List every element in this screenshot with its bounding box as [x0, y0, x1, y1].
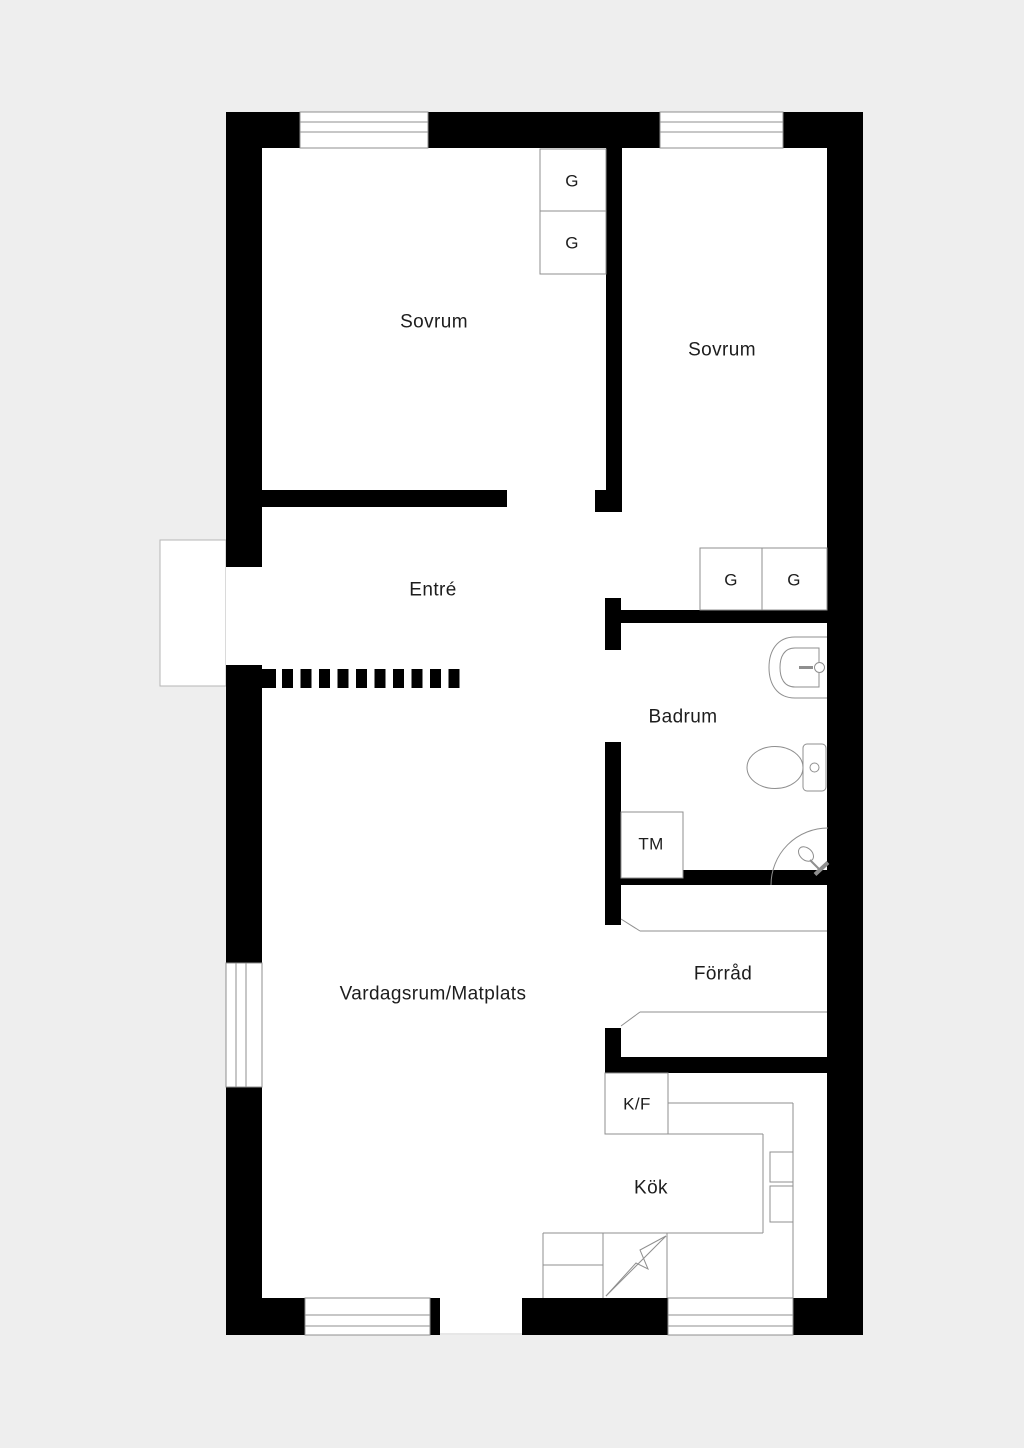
window-top-right: [660, 112, 783, 148]
wall-hall-segment: [605, 598, 621, 650]
wall-left: [226, 112, 262, 1335]
room-label-sovrum-2: Sovrum: [688, 340, 756, 361]
floor-plan-page: SovrumSovrumEntréBadrumFörrådKökVardagsr…: [0, 0, 1024, 1448]
window-bottom-left: [305, 1298, 430, 1335]
appliance-label-kf: K/F: [623, 1095, 651, 1114]
toilet-flush-button: [810, 763, 819, 772]
closet-label-g-3: G: [724, 571, 738, 590]
interior-floor: [262, 148, 827, 1298]
floor-plan: SovrumSovrumEntréBadrumFörrådKökVardagsr…: [0, 0, 1024, 1448]
room-label-forrad: Förråd: [694, 964, 752, 985]
wall-badrum-west: [605, 742, 621, 925]
wall-divider-stub: [262, 669, 276, 688]
open-plan-divider-dash: [301, 669, 312, 688]
wall-forrad-west: [605, 1028, 621, 1057]
open-plan-divider-dash: [319, 669, 330, 688]
window-bottom-right: [668, 1298, 793, 1335]
open-plan-divider-dash: [412, 669, 423, 688]
open-plan-divider-dash: [338, 669, 349, 688]
wall-kitchen-north: [605, 1057, 827, 1073]
appliance-label-tm: TM: [638, 835, 663, 854]
room-label-entre: Entré: [409, 580, 456, 601]
open-plan-divider-dash: [449, 669, 460, 688]
closet-label-g-2: G: [565, 234, 579, 253]
entrance-porch: [160, 540, 226, 686]
room-label-badrum: Badrum: [649, 707, 718, 728]
closet-label-g-4: G: [787, 571, 801, 590]
wall-door-jamb: [595, 490, 622, 512]
window-top-left: [300, 112, 428, 148]
entrance-opening: [226, 567, 262, 665]
wall-badrum-north: [621, 610, 827, 623]
room-label-kok: Kök: [634, 1178, 668, 1199]
open-plan-divider-dash: [430, 669, 441, 688]
wall-bedroom-divider: [606, 148, 622, 512]
wall-right: [827, 112, 863, 1335]
counter-sink-box-2: [770, 1186, 793, 1222]
toilet-bowl: [747, 747, 803, 789]
patio-opening: [440, 1298, 522, 1335]
open-plan-divider-dash: [393, 669, 404, 688]
closet-label-g-1: G: [565, 172, 579, 191]
open-plan-divider-dash: [375, 669, 386, 688]
counter-sink-box-1: [770, 1152, 793, 1182]
wall-sovrum1-south: [262, 490, 507, 507]
open-plan-divider-dash: [282, 669, 293, 688]
room-label-vardagsrum: Vardagsrum/Matplats: [340, 984, 527, 1005]
open-plan-divider-dash: [356, 669, 367, 688]
sink-tap-knob: [815, 663, 825, 673]
window-left: [226, 963, 262, 1087]
room-label-sovrum-1: Sovrum: [400, 312, 468, 333]
